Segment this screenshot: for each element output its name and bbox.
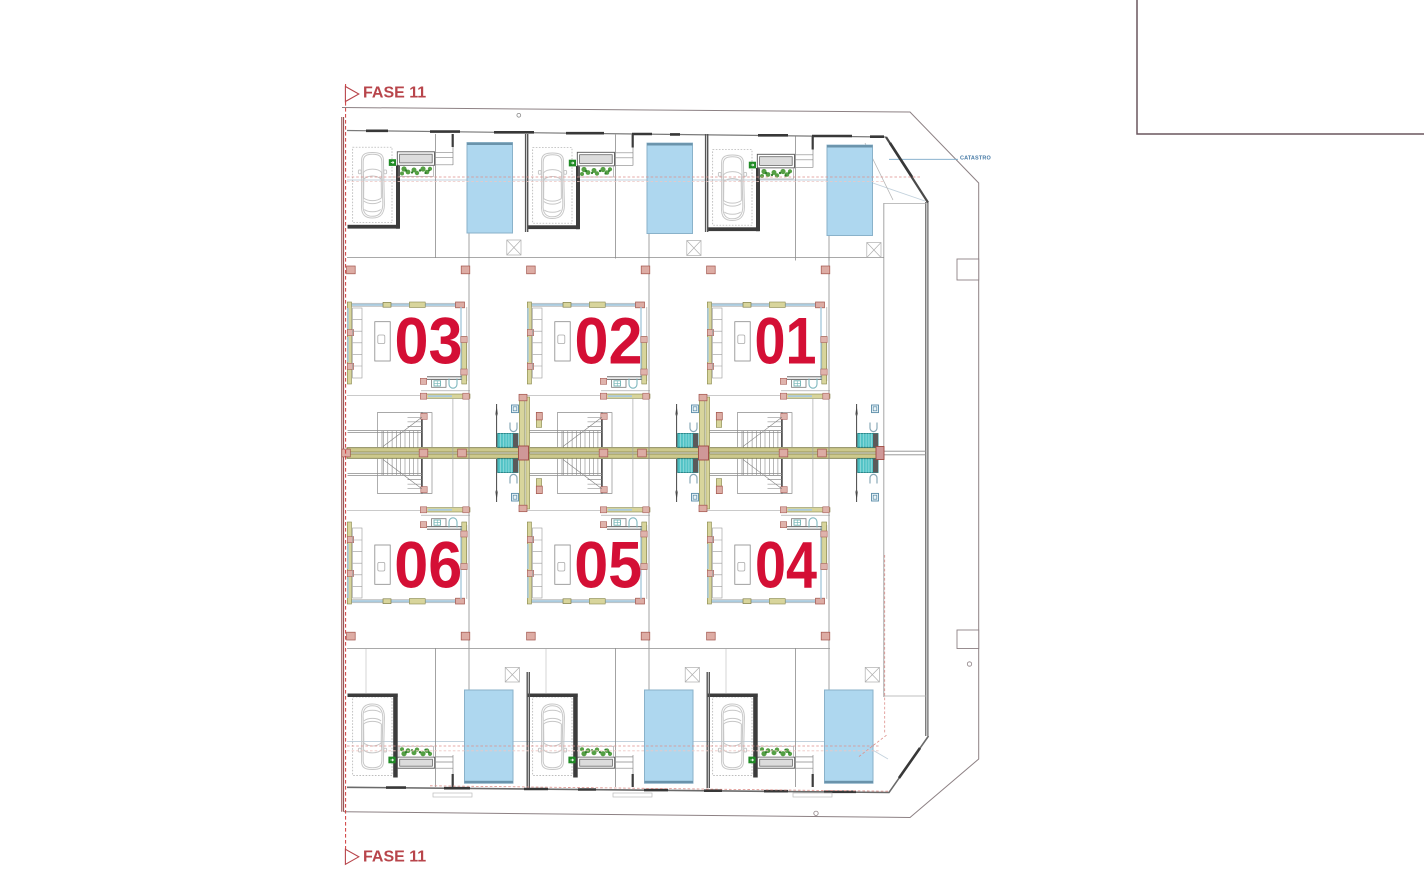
svg-text:FASE 11: FASE 11 bbox=[363, 849, 426, 866]
svg-text:CATASTRO: CATASTRO bbox=[960, 155, 992, 161]
svg-text:05: 05 bbox=[574, 528, 642, 602]
svg-text:FASE 11: FASE 11 bbox=[363, 85, 426, 102]
svg-text:06: 06 bbox=[394, 528, 462, 602]
svg-text:03: 03 bbox=[395, 303, 463, 377]
svg-text:02: 02 bbox=[575, 303, 643, 377]
svg-text:04: 04 bbox=[755, 528, 817, 602]
svg-text:01: 01 bbox=[755, 303, 817, 377]
